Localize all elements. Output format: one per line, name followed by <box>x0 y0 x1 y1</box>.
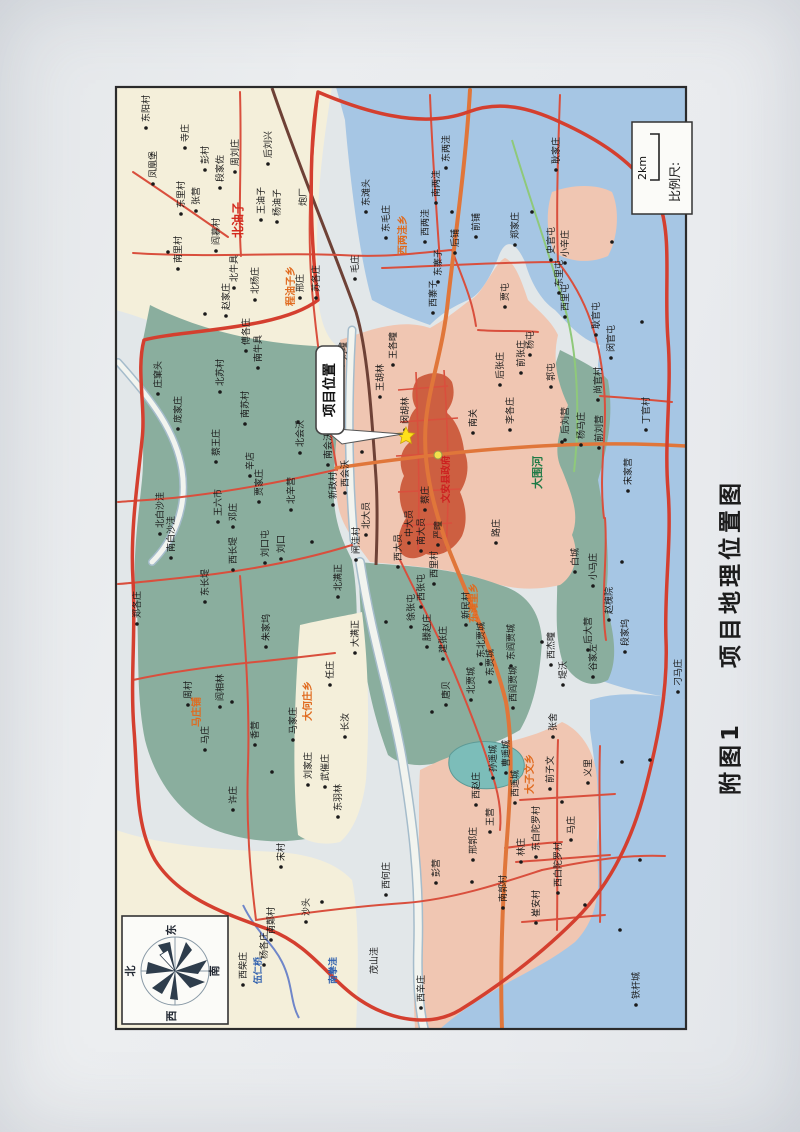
map-label: 后刘营 <box>559 407 571 434</box>
map-label: 南两洼 <box>430 170 442 197</box>
map-label: 前子文 <box>544 756 556 783</box>
village-dot <box>583 903 587 907</box>
village-dot <box>275 220 279 224</box>
map-label: 赵家庄 <box>220 283 232 310</box>
map-label: 郑各庄 <box>131 591 143 618</box>
village-dot <box>328 683 332 687</box>
map-label: 南里村 <box>172 236 184 263</box>
map-label: 东白陀罗村 <box>530 806 542 851</box>
map-label: 曹遥城 <box>500 740 512 767</box>
map-label: 马庄铺 <box>190 697 203 727</box>
map-label: 东里村 <box>175 181 187 208</box>
village-dot <box>503 305 507 309</box>
map-label: 西柴庄 <box>237 952 249 979</box>
map-label: 南苏村 <box>239 391 251 418</box>
map-label: 东滩头 <box>360 179 372 206</box>
village-dot <box>471 431 475 435</box>
map-label: 沙头 <box>301 898 312 916</box>
map-label: 苏各庄 <box>310 265 322 292</box>
village-dot <box>551 735 555 739</box>
village-dot <box>304 920 308 924</box>
map-label: 王各疃 <box>387 332 399 359</box>
village-dot <box>231 525 235 529</box>
village-dot <box>296 420 300 424</box>
village-dot <box>419 549 423 553</box>
map-label: 西长堤 <box>227 537 239 564</box>
map-label: 东寨子 <box>432 249 444 276</box>
village-dot <box>179 212 183 216</box>
map-label: 尚官村 <box>592 367 604 394</box>
scanned-page: 东阳村寺庄凤凰堡彭村段家佐周刘庄后刘兴张营东里村南里村阎慕村赵家庄王油子杨油子北… <box>0 0 800 1132</box>
village-dot <box>353 651 357 655</box>
village-dot <box>169 556 173 560</box>
map-label: 闸洼村 <box>350 527 362 554</box>
village-dot <box>434 881 438 885</box>
village-dot <box>176 427 180 431</box>
village-dot <box>310 540 314 544</box>
village-dot <box>320 900 324 904</box>
village-dot <box>444 703 448 707</box>
map-label: 滕赵庄 <box>421 614 433 641</box>
county-gov-dot <box>434 451 442 459</box>
village-dot <box>279 557 283 561</box>
map-label: 西里屯 <box>559 284 571 311</box>
village-dot <box>498 383 502 387</box>
map-label: 王胡林 <box>374 364 386 391</box>
compass-west-label: 西 <box>165 1011 178 1022</box>
map-label: 崔安村 <box>530 890 542 917</box>
village-dot <box>419 1006 423 1010</box>
village-dot <box>233 170 237 174</box>
village-dot <box>563 438 567 442</box>
village-dot <box>430 710 434 714</box>
village-dot <box>135 622 139 626</box>
map-label: 凤凰堡 <box>147 151 159 178</box>
village-dot <box>214 460 218 464</box>
map-label: 东北贾城 <box>475 622 487 658</box>
village-dot <box>644 428 648 432</box>
village-dot <box>434 201 438 205</box>
village-dot <box>573 570 577 574</box>
map-label: 炮厂 <box>297 188 309 206</box>
village-dot <box>423 240 427 244</box>
map-label: 伍仁桥 <box>252 956 264 985</box>
map-label: 蔡王庄 <box>210 429 222 456</box>
village-dot <box>554 168 558 172</box>
village-dot <box>214 249 218 253</box>
map-label: 郭屯 <box>545 363 557 381</box>
village-dot <box>343 491 347 495</box>
map-label: 大满正 <box>349 620 361 647</box>
village-dot <box>540 640 544 644</box>
village-dot <box>384 620 388 624</box>
village-dot <box>243 422 247 426</box>
compass-south-label: 南 <box>207 966 221 977</box>
map-label: 宋家营 <box>622 458 634 485</box>
map-label: 建张庄 <box>437 626 449 653</box>
village-dot <box>264 645 268 649</box>
village-dot <box>396 565 400 569</box>
village-dot <box>306 783 310 787</box>
village-dot <box>378 395 382 399</box>
map-label: 后铺 <box>449 229 461 247</box>
compass-north-label: 北 <box>123 966 137 977</box>
map-label: 北大员 <box>360 502 372 529</box>
village-dot <box>391 363 395 367</box>
village-dot <box>638 858 642 862</box>
village-dot <box>594 333 598 337</box>
village-dot <box>144 126 148 130</box>
map-body: 东阳村寺庄凤凰堡彭村段家佐周刘庄后刘兴张营东里村南里村阎慕村赵家庄王油子杨油子北… <box>116 87 686 1029</box>
map-label: 新政村 <box>327 472 339 499</box>
map-label: 贾家庄 <box>253 469 265 496</box>
village-dot <box>218 705 222 709</box>
map-label: 小马庄 <box>587 553 599 580</box>
map-label: 王油子 <box>255 187 267 214</box>
village-dot <box>384 236 388 240</box>
map-label: 南白沙洼 <box>165 516 177 552</box>
map-label: 后刘兴 <box>262 131 274 158</box>
map-label: 堤沃 <box>558 661 569 679</box>
village-dot <box>534 855 538 859</box>
map-label: 后张庄 <box>494 352 506 379</box>
village-dot <box>244 349 248 353</box>
village-dot <box>513 243 517 247</box>
map-label: 东滩里乡 <box>467 583 480 623</box>
village-dot <box>488 830 492 834</box>
compass-east-label: 东 <box>164 925 178 936</box>
map-label: 北满正 <box>333 564 344 591</box>
map-label: 西两洼 <box>419 209 431 236</box>
village-dot <box>384 893 388 897</box>
map-label: 北辛营 <box>285 477 297 504</box>
map-label: 杨屯 <box>524 331 536 349</box>
map-label: 北贾城 <box>466 667 477 694</box>
map-label: 严疃 <box>432 521 444 539</box>
map-label: 邢庄 <box>294 274 306 292</box>
map-label: 西阎贾城 <box>508 666 519 702</box>
village-dot <box>591 675 595 679</box>
village-dot <box>431 311 435 315</box>
village-dot <box>289 508 293 512</box>
map-label: 北杨庄 <box>249 267 261 294</box>
village-dot <box>556 891 560 895</box>
village-dot <box>618 928 622 932</box>
map-label: 东毛庄 <box>380 205 392 232</box>
map-label: 赵槐院 <box>603 587 615 614</box>
village-dot <box>436 543 440 547</box>
village-dot <box>257 500 261 504</box>
map-label: 许庄 <box>227 786 239 804</box>
scale-value: 2km <box>636 156 649 180</box>
map-label: 长汝 <box>339 713 351 731</box>
map-label: 孙遥城 <box>487 745 499 772</box>
compass-rose: 东 西 北 南 <box>122 916 228 1024</box>
map-label: 前刘营 <box>593 415 605 442</box>
village-dot <box>534 921 538 925</box>
map-label: 武催庄 <box>319 754 331 781</box>
map-label: 周刘庄 <box>229 139 241 166</box>
village-dot <box>549 258 553 262</box>
village-dot <box>232 286 236 290</box>
village-dot <box>409 625 413 629</box>
village-dot <box>501 906 505 910</box>
map-label: 张营 <box>190 187 202 205</box>
map-label: 刘家庄 <box>302 752 314 779</box>
village-dot <box>183 146 187 150</box>
village-dot <box>166 250 170 254</box>
map-label: 林庄 <box>515 838 527 856</box>
village-dot <box>648 758 652 762</box>
map-label: 徐张屯 <box>405 594 417 621</box>
village-dot <box>450 210 454 214</box>
map-label: 西遥城 <box>509 770 521 797</box>
village-dot <box>326 463 330 467</box>
map-label: 杨各庄 <box>258 932 270 959</box>
village-dot <box>270 770 274 774</box>
village-dot <box>343 735 347 739</box>
village-dot <box>474 235 478 239</box>
village-dot <box>504 771 508 775</box>
map-label: 西两洼乡 <box>396 215 409 255</box>
village-dot <box>513 801 517 805</box>
map-label: 东里屯 <box>553 260 565 287</box>
map-label: 白城 <box>569 548 581 566</box>
map-label: 西张屯 <box>415 574 427 601</box>
village-dot <box>620 560 624 564</box>
map-label: 北牛具 <box>228 255 240 282</box>
village-dot <box>216 520 220 524</box>
village-dot <box>560 440 564 444</box>
map-label: 宋村 <box>275 843 287 861</box>
village-dot <box>471 858 475 862</box>
map-label: 邢郭庄 <box>467 827 479 854</box>
village-dot <box>511 706 515 710</box>
village-dot <box>494 541 498 545</box>
map-label: 中大员 <box>403 510 415 537</box>
map-label: 张舍 <box>547 713 559 731</box>
village-dot <box>597 446 601 450</box>
village-dot <box>610 240 614 244</box>
map-label: 周村 <box>182 681 194 699</box>
village-dot <box>432 582 436 586</box>
village-dot <box>623 650 627 654</box>
village-dot <box>586 781 590 785</box>
map-label: 茂山洼 <box>368 947 380 974</box>
village-dot <box>298 451 302 455</box>
map-label: 马庄 <box>199 726 211 744</box>
caption-title: 项目地理位置图 <box>717 479 744 668</box>
map-label: 南郭村 <box>497 875 509 902</box>
map-label: 段家佐 <box>214 155 226 182</box>
village-dot <box>560 800 564 804</box>
map-label: 刘口 <box>275 535 287 553</box>
village-dot <box>156 392 160 396</box>
map-label: 南牛具 <box>252 335 264 362</box>
map-label: 马家庄 <box>287 707 299 734</box>
map-label: 北白沙洼 <box>154 492 166 528</box>
village-dot <box>256 366 260 370</box>
map-label: 大何庄乡 <box>301 681 314 721</box>
village-dot <box>186 703 190 707</box>
map-label: 西辛庄 <box>415 975 427 1002</box>
map-label: 庞家庄 <box>172 396 184 423</box>
village-dot <box>336 595 340 599</box>
map-label: 大围河 <box>530 456 544 489</box>
map-label: 邓庄 <box>227 503 239 521</box>
village-dot <box>298 296 302 300</box>
map-label: 耿家庄 <box>550 137 562 164</box>
map-label: 西会沃 <box>339 460 351 487</box>
village-dot <box>279 865 283 869</box>
map-label: 西里村 <box>428 551 440 578</box>
map-label: 史官屯 <box>545 227 557 254</box>
scale-label: 比例尺: <box>668 162 682 202</box>
village-dot <box>519 371 523 375</box>
village-dot <box>263 561 267 565</box>
village-dot <box>354 558 358 562</box>
map-label: 北苏村 <box>214 359 226 386</box>
map-label: 东阎贾城 <box>505 624 517 660</box>
scale-bar: 2km 比例尺: <box>632 122 692 214</box>
village-dot <box>488 680 492 684</box>
caption-figure-no: 附图1 <box>717 721 744 795</box>
map-label: 杨马庄 <box>575 412 587 439</box>
village-dot <box>151 182 155 186</box>
map-label: 彭村 <box>199 146 211 164</box>
village-dot <box>596 398 600 402</box>
map-label: 耿官屯 <box>590 302 602 329</box>
village-dot <box>218 390 222 394</box>
map-label: 刁马庄 <box>672 659 684 686</box>
village-dot <box>586 648 590 652</box>
village-dot <box>323 785 327 789</box>
village-dot <box>469 698 473 702</box>
village-dot <box>464 623 468 627</box>
map-label: 文安县政府 <box>440 455 452 504</box>
map-label: 义里 <box>583 759 594 777</box>
map-label: 西大员 <box>392 534 404 561</box>
village-dot <box>203 312 207 316</box>
village-dot <box>407 541 411 545</box>
village-dot <box>676 690 680 694</box>
map-label: 阎慕村 <box>210 218 222 245</box>
village-dot <box>640 320 644 324</box>
village-dot <box>353 277 357 281</box>
map-label: 王营 <box>484 808 496 826</box>
map-label: 前铺 <box>470 213 482 231</box>
map-label: 王六市 <box>212 489 224 516</box>
map-label: 郑家庄 <box>509 212 521 239</box>
village-dot <box>474 803 478 807</box>
village-dot <box>203 600 207 604</box>
map-label: 李各庄 <box>504 397 516 424</box>
map-label: 刘口屯 <box>259 530 271 557</box>
village-dot <box>423 508 427 512</box>
map-label: 寺庄 <box>179 124 191 142</box>
map-label: 东两洼 <box>440 135 452 162</box>
village-dot <box>569 838 573 842</box>
map-label: 毛庄 <box>349 255 361 273</box>
village-dot <box>364 210 368 214</box>
village-dot <box>336 815 340 819</box>
map-label: 路庄 <box>490 519 502 537</box>
village-dot <box>259 218 263 222</box>
village-dot <box>609 356 613 360</box>
village-dot <box>470 880 474 884</box>
map-label: 西寨子 <box>427 280 439 307</box>
village-dot <box>441 657 445 661</box>
village-dot <box>491 776 495 780</box>
map-label: 小辛庄 <box>559 230 571 257</box>
map-label: 东羽林 <box>332 784 344 811</box>
map-label: 南关 <box>467 409 479 427</box>
village-dot <box>634 1003 638 1007</box>
location-map-figure: 东阳村寺庄凤凰堡彭村段家佐周刘庄后刘兴张营东里村南里村阎慕村赵家庄王油子杨油子北… <box>0 0 800 1132</box>
village-dot <box>549 663 553 667</box>
callout-text: 项目位置 <box>321 363 338 417</box>
map-label: 段家坞 <box>619 619 631 646</box>
map-label: 南大员 <box>415 518 427 545</box>
map-label: 东阳村 <box>140 95 152 122</box>
village-dot <box>241 983 245 987</box>
map-label: 朱家坞 <box>260 614 272 641</box>
village-dot <box>453 251 457 255</box>
village-dot <box>591 584 595 588</box>
village-dot <box>253 298 257 302</box>
map-label: 西何庄 <box>380 862 392 889</box>
village-dot <box>158 532 162 536</box>
map-label: 谷家左 <box>587 644 599 671</box>
village-dot <box>291 738 295 742</box>
village-dot <box>419 605 423 609</box>
map-label: 闵胡林 <box>399 397 411 424</box>
map-label: 杨油子 <box>271 189 283 216</box>
village-dot <box>231 808 235 812</box>
map-label: 彭营 <box>430 859 442 877</box>
village-dot <box>360 450 364 454</box>
village-dot <box>331 503 335 507</box>
village-dot <box>519 860 523 864</box>
village-dot <box>203 168 207 172</box>
map-label: 东长堤 <box>199 569 211 596</box>
village-dot <box>218 186 222 190</box>
figure-caption: 附图1 项目地理位置图 <box>717 479 744 795</box>
village-dot <box>548 787 552 791</box>
village-dot <box>224 314 228 318</box>
village-dot <box>508 428 512 432</box>
village-dot <box>231 568 235 572</box>
map-label: 唐贝 <box>440 681 452 699</box>
village-dot <box>364 533 368 537</box>
map-label: 闵官屯 <box>605 325 617 352</box>
map-label: 丁官村 <box>640 397 652 424</box>
map-label: 大子文乡 <box>523 754 536 794</box>
village-dot <box>253 743 257 747</box>
village-dot <box>607 618 611 622</box>
map-label: 傅各庄 <box>240 318 252 345</box>
village-dot <box>314 296 318 300</box>
map-label: 辛店 <box>244 452 256 470</box>
village-dot <box>176 267 180 271</box>
map-label: 任庄 <box>324 661 336 679</box>
village-dot <box>262 963 266 967</box>
village-dot <box>528 353 532 357</box>
map-label: 香营 <box>249 721 261 739</box>
village-dot <box>248 474 252 478</box>
village-dot <box>444 166 448 170</box>
village-dot <box>626 489 630 493</box>
